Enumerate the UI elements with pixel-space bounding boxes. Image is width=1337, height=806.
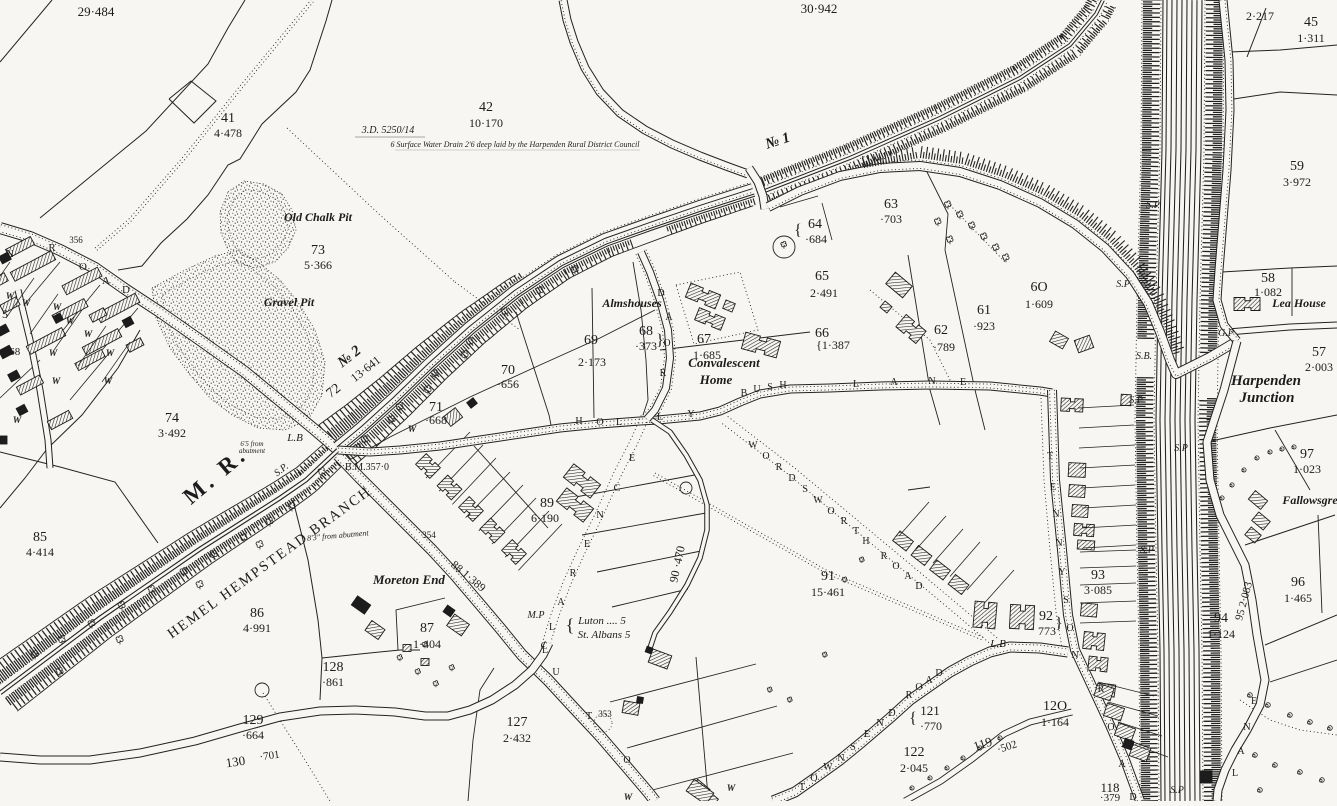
- svg-text:96: 96: [1291, 575, 1305, 590]
- svg-text:G.P: G.P: [1218, 328, 1234, 339]
- svg-text:S.P: S.P: [1146, 200, 1160, 211]
- svg-text:W: W: [624, 793, 633, 801]
- svg-text:773: 773: [1038, 624, 1056, 638]
- svg-text:94: 94: [1214, 611, 1228, 626]
- svg-text:130: 130: [225, 753, 246, 771]
- svg-text:354: 354: [422, 530, 436, 540]
- svg-text:L.B: L.B: [989, 638, 1006, 650]
- svg-text:3·972: 3·972: [1283, 175, 1311, 189]
- svg-text:W: W: [53, 303, 62, 313]
- svg-text:N: N: [928, 376, 935, 387]
- svg-text:T: T: [1047, 451, 1053, 462]
- svg-text:B.M.357·0: B.M.357·0: [345, 462, 389, 473]
- svg-text:L: L: [549, 622, 555, 633]
- svg-text:R: R: [570, 568, 577, 579]
- svg-text:91: 91: [821, 569, 835, 584]
- svg-text:S.P: S.P: [1116, 279, 1130, 290]
- svg-text:57: 57: [1312, 345, 1326, 360]
- svg-text:Home: Home: [699, 372, 733, 387]
- svg-text:W: W: [52, 377, 61, 387]
- svg-text:L: L: [657, 412, 663, 423]
- svg-text:5: 5: [2, 307, 8, 321]
- svg-text:356: 356: [69, 235, 83, 245]
- svg-text:L: L: [853, 379, 859, 390]
- svg-text:D: D: [888, 708, 895, 719]
- svg-text:15·461: 15·461: [811, 585, 845, 599]
- svg-text:L: L: [542, 645, 548, 656]
- svg-text:B: B: [741, 388, 748, 399]
- svg-text:12O: 12O: [1043, 699, 1067, 714]
- svg-text:Harpenden: Harpenden: [1230, 373, 1301, 389]
- svg-text:W: W: [6, 292, 15, 302]
- svg-text:W: W: [22, 299, 31, 309]
- svg-text:A: A: [925, 675, 933, 686]
- svg-text:O: O: [827, 506, 834, 517]
- svg-text:Moreton End: Moreton End: [372, 572, 445, 587]
- svg-text:C: C: [614, 483, 621, 494]
- svg-text:L.B: L.B: [286, 432, 303, 444]
- svg-text:61: 61: [977, 303, 991, 318]
- svg-text:O: O: [1107, 722, 1114, 733]
- svg-text:92: 92: [1039, 609, 1053, 624]
- svg-text:29·484: 29·484: [78, 4, 115, 19]
- svg-text:D: D: [657, 288, 664, 299]
- svg-text:·664: ·664: [242, 728, 264, 742]
- svg-text:R: R: [776, 462, 783, 473]
- svg-text:D: D: [122, 284, 130, 296]
- svg-text:S.P: S.P: [1170, 785, 1184, 796]
- svg-text:O: O: [810, 773, 817, 784]
- svg-text:65: 65: [815, 269, 829, 284]
- svg-text:S.P: S.P: [1174, 443, 1188, 454]
- svg-text:·861: ·861: [322, 675, 344, 689]
- svg-text:}: }: [1055, 615, 1063, 632]
- svg-text:N: N: [1055, 538, 1062, 549]
- svg-text:E: E: [584, 539, 590, 550]
- svg-text:58: 58: [1261, 271, 1275, 286]
- svg-text:127: 127: [507, 715, 528, 730]
- svg-text:O: O: [892, 561, 899, 572]
- svg-text:10·170: 10·170: [469, 116, 503, 130]
- svg-text:L: L: [1232, 768, 1238, 779]
- svg-text:T: T: [586, 711, 592, 722]
- svg-text:·668: ·668: [425, 413, 447, 427]
- svg-text:{: {: [794, 222, 802, 239]
- svg-text:W: W: [66, 317, 75, 327]
- svg-text:Gravel Pit: Gravel Pit: [264, 295, 315, 309]
- svg-text:O: O: [79, 261, 87, 273]
- svg-text:S.B.: S.B.: [1136, 351, 1152, 362]
- svg-text:A: A: [102, 275, 110, 287]
- svg-text:41: 41: [221, 111, 235, 126]
- svg-text:1·609: 1·609: [1025, 297, 1053, 311]
- svg-text:E: E: [1251, 696, 1257, 707]
- svg-text:N: N: [837, 753, 844, 764]
- svg-text:S: S: [850, 742, 856, 753]
- svg-text:N: N: [1071, 650, 1078, 661]
- svg-text:67: 67: [697, 332, 711, 347]
- svg-text:·770: ·770: [920, 719, 942, 733]
- svg-text:129: 129: [243, 713, 264, 728]
- svg-text:1·124: 1·124: [1207, 627, 1235, 641]
- svg-text:M.P: M.P: [527, 610, 545, 621]
- svg-text:A: A: [1237, 746, 1245, 757]
- svg-text:1·311: 1·311: [1297, 31, 1325, 45]
- svg-text:{: {: [566, 615, 575, 635]
- svg-text:St. Albans 5: St. Albans 5: [578, 629, 631, 641]
- svg-text:O: O: [623, 755, 630, 766]
- svg-text:D: D: [935, 668, 942, 679]
- svg-text:45: 45: [1304, 15, 1318, 30]
- svg-text:Almshouses: Almshouses: [601, 296, 662, 310]
- svg-text:E: E: [960, 377, 966, 388]
- svg-text:68: 68: [639, 324, 653, 339]
- svg-text:L: L: [616, 417, 622, 428]
- svg-text:H: H: [779, 380, 786, 391]
- svg-text:97: 97: [1300, 447, 1314, 462]
- svg-text:R: R: [48, 242, 56, 254]
- svg-text:N: N: [1052, 509, 1059, 520]
- svg-text:2·003: 2·003: [1305, 360, 1333, 374]
- svg-text:1·023: 1·023: [1293, 462, 1321, 476]
- svg-text:30·942: 30·942: [801, 1, 838, 16]
- svg-text:R: R: [660, 368, 667, 379]
- svg-text:Luton .... 5: Luton .... 5: [577, 615, 626, 627]
- svg-text:W: W: [408, 425, 417, 435]
- svg-text:6 Surface Water Drain 2'6 deep: 6 Surface Water Drain 2'6 deep laid by t…: [391, 140, 641, 149]
- svg-text:Y: Y: [687, 409, 694, 420]
- svg-text:5·366: 5·366: [304, 258, 332, 272]
- svg-text:1·465: 1·465: [1284, 591, 1312, 605]
- svg-text:62: 62: [934, 323, 948, 338]
- svg-text:89: 89: [540, 496, 554, 511]
- svg-text:N: N: [1243, 722, 1250, 733]
- svg-text:4·991: 4·991: [243, 621, 271, 635]
- svg-text:H: H: [862, 536, 869, 547]
- svg-text:6O: 6O: [1030, 280, 1047, 295]
- svg-text:A: A: [1118, 759, 1126, 770]
- svg-text:D: D: [915, 581, 922, 592]
- svg-text:1·164: 1·164: [1041, 715, 1069, 729]
- svg-text:E: E: [629, 453, 635, 464]
- svg-text:128: 128: [323, 660, 344, 675]
- svg-text:353: 353: [598, 709, 612, 719]
- svg-text:W: W: [823, 762, 833, 773]
- svg-text:2·217: 2·217: [1246, 9, 1274, 23]
- svg-text:W: W: [727, 784, 736, 794]
- svg-text:W: W: [813, 495, 823, 506]
- svg-text:A: A: [665, 312, 673, 323]
- svg-text:O: O: [1066, 623, 1073, 634]
- svg-text:4·478: 4·478: [214, 126, 242, 140]
- svg-text:W: W: [13, 416, 22, 426]
- svg-text:W: W: [748, 440, 758, 451]
- svg-text:W: W: [84, 330, 93, 340]
- svg-text:·656: ·656: [497, 377, 519, 391]
- svg-text:63: 63: [884, 197, 898, 212]
- svg-text:·923: ·923: [973, 319, 995, 333]
- svg-text:S: S: [802, 484, 808, 495]
- svg-text:6·190: 6·190: [531, 511, 559, 525]
- svg-text:64: 64: [808, 217, 822, 232]
- svg-text:Lea House: Lea House: [1271, 296, 1326, 310]
- svg-text:N: N: [6, 248, 14, 260]
- svg-text:·684: ·684: [805, 232, 827, 246]
- svg-text:·703: ·703: [880, 212, 902, 226]
- svg-text:86: 86: [250, 606, 264, 621]
- svg-text:S.P: S.P: [1140, 545, 1154, 556]
- svg-text:·379: ·379: [1100, 792, 1121, 801]
- svg-text:S.P: S.P: [1129, 395, 1143, 406]
- svg-text:3·085: 3·085: [1084, 583, 1112, 597]
- svg-text:4·414: 4·414: [26, 545, 54, 559]
- svg-text:2·045: 2·045: [900, 761, 928, 775]
- svg-text:N: N: [596, 510, 603, 521]
- svg-text:42: 42: [479, 100, 493, 115]
- svg-text:O: O: [762, 451, 769, 462]
- svg-text:59: 59: [1290, 159, 1304, 174]
- svg-text:S: S: [767, 382, 773, 393]
- svg-text:Y: Y: [1058, 567, 1065, 578]
- svg-text:73: 73: [311, 243, 325, 258]
- svg-text:U: U: [753, 384, 761, 395]
- svg-text:121: 121: [920, 703, 940, 718]
- svg-text:87: 87: [420, 621, 434, 636]
- svg-text:668: 668: [4, 346, 21, 358]
- svg-text:·789: ·789: [933, 340, 955, 354]
- svg-text:E: E: [1050, 482, 1056, 493]
- svg-text:R: R: [841, 516, 848, 527]
- svg-text:122: 122: [904, 745, 925, 760]
- svg-text:Junction: Junction: [1238, 390, 1294, 406]
- svg-text:U: U: [552, 667, 560, 678]
- svg-text:O: O: [915, 682, 922, 693]
- svg-text:69: 69: [584, 333, 598, 348]
- svg-text:R: R: [1098, 684, 1105, 695]
- svg-text:Convalescent: Convalescent: [688, 355, 760, 370]
- svg-text:2·432: 2·432: [503, 731, 531, 745]
- svg-text:E: E: [864, 729, 870, 740]
- svg-text:3.D. 5250/14: 3.D. 5250/14: [361, 125, 415, 136]
- svg-text:3·492: 3·492: [158, 426, 186, 440]
- svg-text:D: D: [1129, 792, 1136, 801]
- svg-text:S: S: [1063, 595, 1069, 606]
- svg-text:W: W: [104, 377, 113, 387]
- svg-text:2·491: 2·491: [810, 286, 838, 300]
- svg-text:W: W: [49, 349, 58, 359]
- svg-text:A: A: [904, 571, 912, 582]
- svg-text:A: A: [557, 597, 565, 608]
- svg-text:N: N: [876, 718, 883, 729]
- svg-text:Old Chalk Pit: Old Chalk Pit: [284, 210, 353, 224]
- svg-text:W: W: [106, 349, 115, 359]
- svg-text:{1·387: {1·387: [816, 338, 850, 352]
- svg-text:O: O: [663, 338, 670, 349]
- svg-text:D: D: [788, 473, 795, 484]
- svg-text:1·404: 1·404: [413, 637, 441, 651]
- svg-text:T: T: [799, 782, 805, 793]
- svg-text:70: 70: [501, 363, 515, 378]
- svg-text:O: O: [596, 417, 603, 428]
- svg-text:93: 93: [1091, 568, 1105, 583]
- svg-text:R: R: [881, 551, 888, 562]
- svg-text:{: {: [909, 710, 917, 727]
- svg-text:R: R: [906, 690, 913, 701]
- svg-text:Fallowsgre: Fallowsgre: [1281, 493, 1337, 507]
- svg-text:A: A: [890, 377, 898, 388]
- svg-text:T: T: [853, 526, 859, 537]
- svg-text:·373: ·373: [635, 339, 657, 353]
- svg-text:74: 74: [165, 411, 179, 426]
- svg-text:H: H: [575, 416, 582, 427]
- svg-text:2·173: 2·173: [578, 355, 606, 369]
- svg-text:85: 85: [33, 530, 47, 545]
